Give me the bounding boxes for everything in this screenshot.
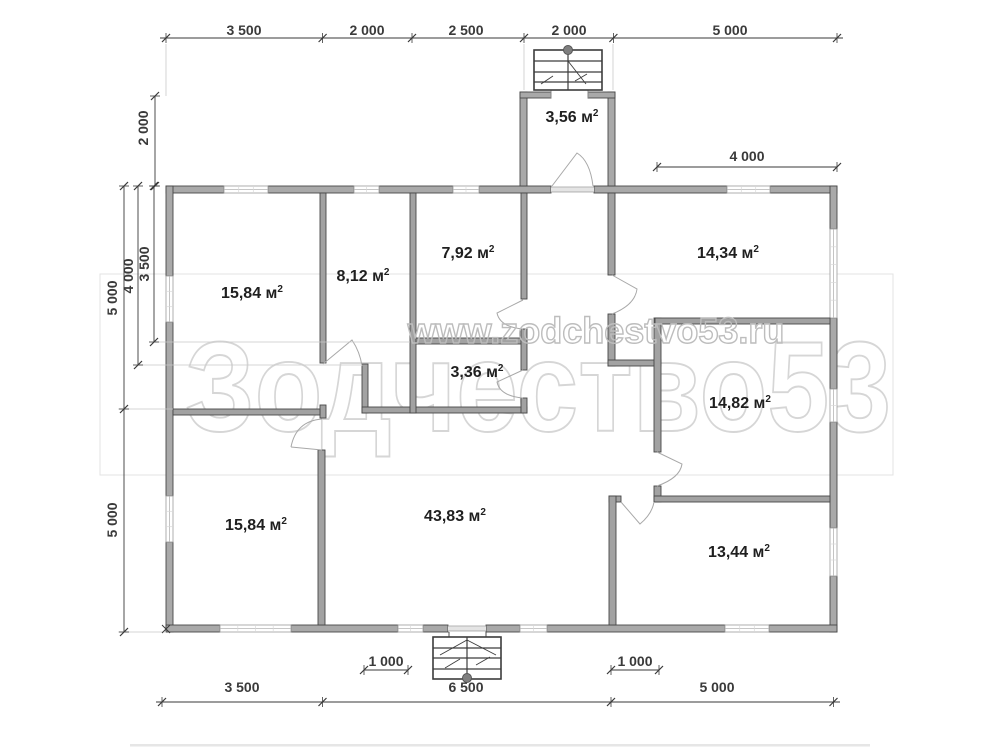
svg-text:15,84 м2: 15,84 м2 xyxy=(225,516,287,534)
svg-text:3 500: 3 500 xyxy=(136,246,152,281)
svg-text:5 000: 5 000 xyxy=(104,280,120,315)
svg-text:5 000: 5 000 xyxy=(104,502,120,537)
svg-text:1 000: 1 000 xyxy=(617,653,652,669)
svg-text:4 000: 4 000 xyxy=(120,258,136,293)
svg-text:www.zodchestvo53.ru: www.zodchestvo53.ru xyxy=(407,310,785,351)
svg-text:3,56 м2: 3,56 м2 xyxy=(546,108,599,126)
svg-text:2 000: 2 000 xyxy=(135,110,151,145)
svg-text:15,84 м2: 15,84 м2 xyxy=(221,284,283,302)
svg-text:43,83 м2: 43,83 м2 xyxy=(424,507,486,525)
svg-text:5 000: 5 000 xyxy=(712,22,747,38)
svg-text:8,12 м2: 8,12 м2 xyxy=(337,267,390,285)
svg-text:13,44 м2: 13,44 м2 xyxy=(708,543,770,561)
svg-text:7,92 м2: 7,92 м2 xyxy=(442,244,495,262)
svg-text:14,34 м2: 14,34 м2 xyxy=(697,244,759,262)
svg-text:14,82 м2: 14,82 м2 xyxy=(709,394,771,412)
svg-text:2 000: 2 000 xyxy=(349,22,384,38)
svg-text:3 500: 3 500 xyxy=(224,679,259,695)
svg-text:3 500: 3 500 xyxy=(226,22,261,38)
svg-text:3,36 м2: 3,36 м2 xyxy=(451,363,504,381)
svg-text:2 500: 2 500 xyxy=(448,22,483,38)
svg-text:2 000: 2 000 xyxy=(551,22,586,38)
svg-text:5 000: 5 000 xyxy=(699,679,734,695)
svg-text:6 500: 6 500 xyxy=(448,679,483,695)
svg-text:4 000: 4 000 xyxy=(729,148,764,164)
svg-text:1 000: 1 000 xyxy=(368,653,403,669)
